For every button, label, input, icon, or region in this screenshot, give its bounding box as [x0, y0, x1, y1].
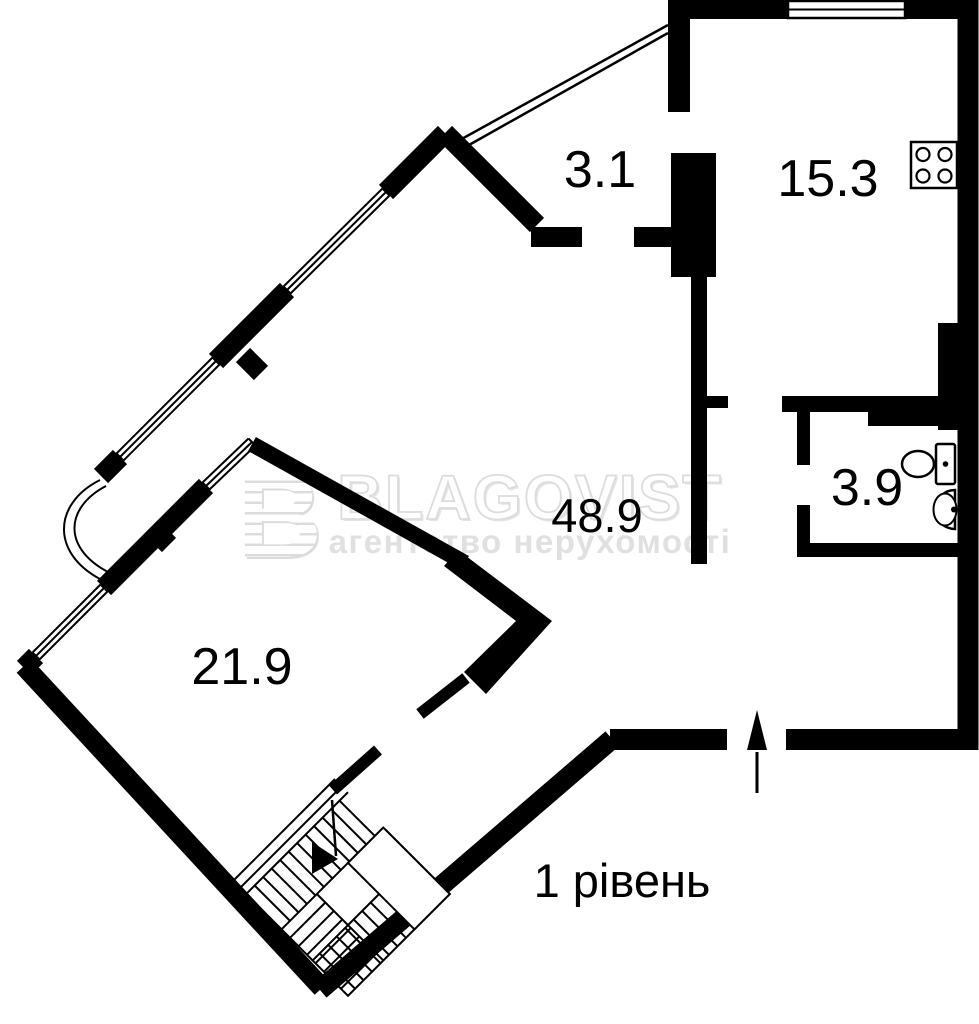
- floor-plan: B B BLAGOVIST BLAGOVIST агентство нерухо…: [0, 0, 979, 1024]
- stove-icon: [911, 142, 957, 188]
- room-label-hallway: 3.1: [564, 141, 636, 199]
- room-label-bathroom: 3.9: [831, 459, 903, 517]
- window-top: [788, 1, 905, 18]
- floor-plan-page: B B BLAGOVIST BLAGOVIST агентство нерухо…: [0, 0, 979, 1024]
- wall-kitchen-column: [671, 153, 716, 277]
- room-label-living: 48.9: [551, 489, 642, 542]
- room-label-bedroom: 21.9: [191, 638, 292, 696]
- room-label-kitchen: 15.3: [777, 150, 878, 208]
- level-label: 1 рівень: [534, 854, 711, 907]
